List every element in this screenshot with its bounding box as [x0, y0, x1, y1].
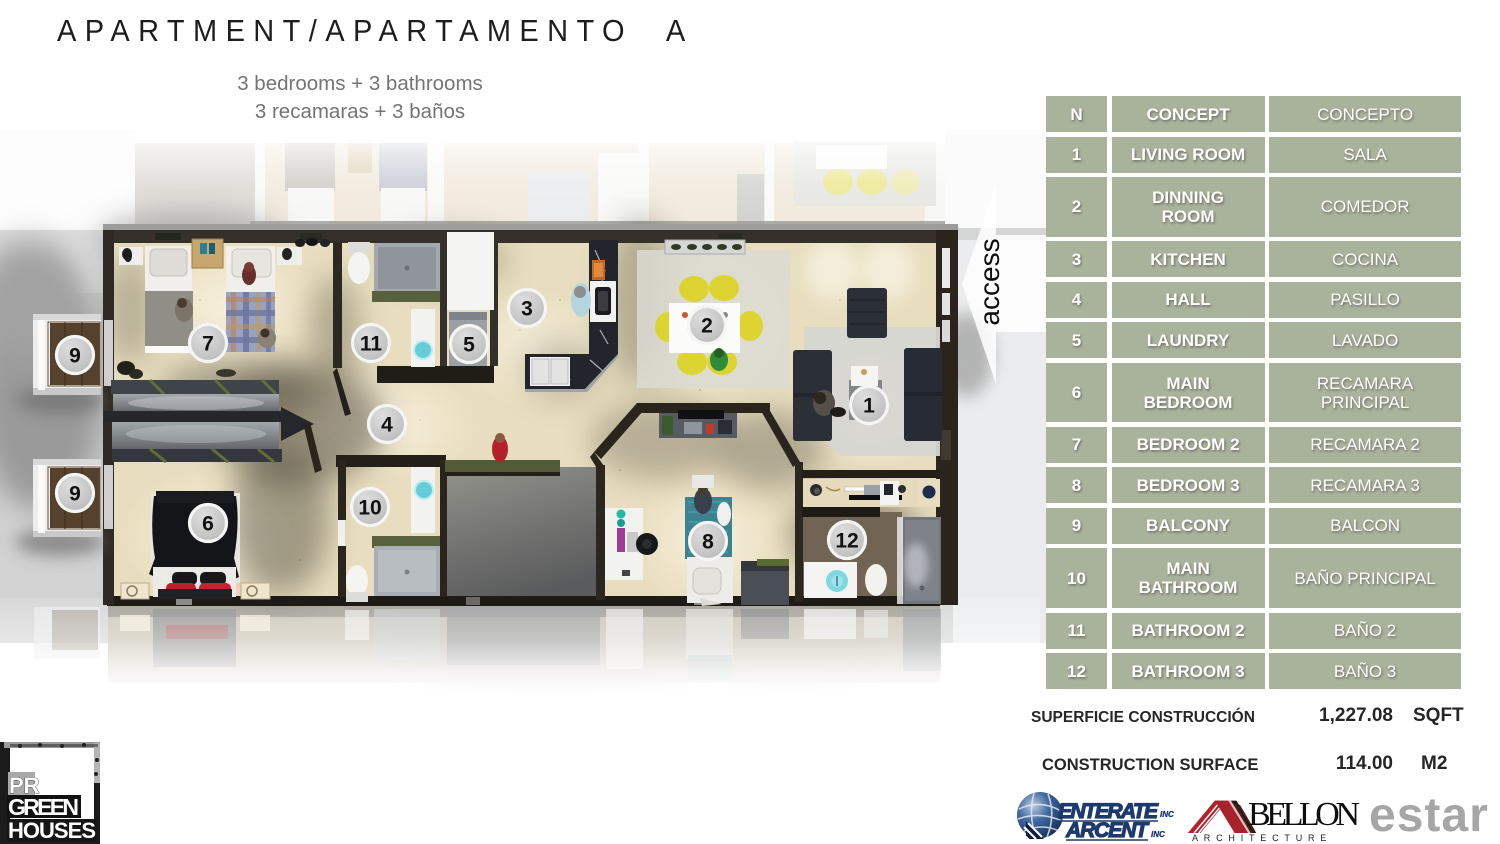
svg-text:HOUSES: HOUSES: [8, 818, 96, 843]
svg-text:INC: INC: [1151, 830, 1165, 839]
svg-text:5: 5: [463, 334, 475, 357]
svg-text:ARCHITECTURE: ARCHITECTURE: [1192, 833, 1332, 843]
svg-text:10: 10: [358, 497, 381, 520]
svg-text:BELLON: BELLON: [1248, 796, 1360, 833]
svg-text:3: 3: [521, 298, 533, 321]
svg-text:INC: INC: [1160, 810, 1174, 819]
svg-text:12: 12: [835, 530, 858, 553]
svg-text:GREEN: GREEN: [8, 794, 79, 820]
svg-text:6: 6: [202, 513, 214, 536]
svg-text:9: 9: [69, 483, 81, 506]
svg-text:7: 7: [202, 333, 214, 356]
svg-text:ARCENT: ARCENT: [1065, 819, 1150, 842]
svg-text:2: 2: [701, 315, 713, 338]
svg-text:1: 1: [863, 395, 875, 418]
svg-text:access: access: [974, 238, 1005, 325]
svg-text:11: 11: [360, 333, 383, 356]
svg-text:9: 9: [69, 345, 81, 368]
svg-text:8: 8: [702, 531, 714, 554]
svg-text:4: 4: [381, 414, 393, 437]
